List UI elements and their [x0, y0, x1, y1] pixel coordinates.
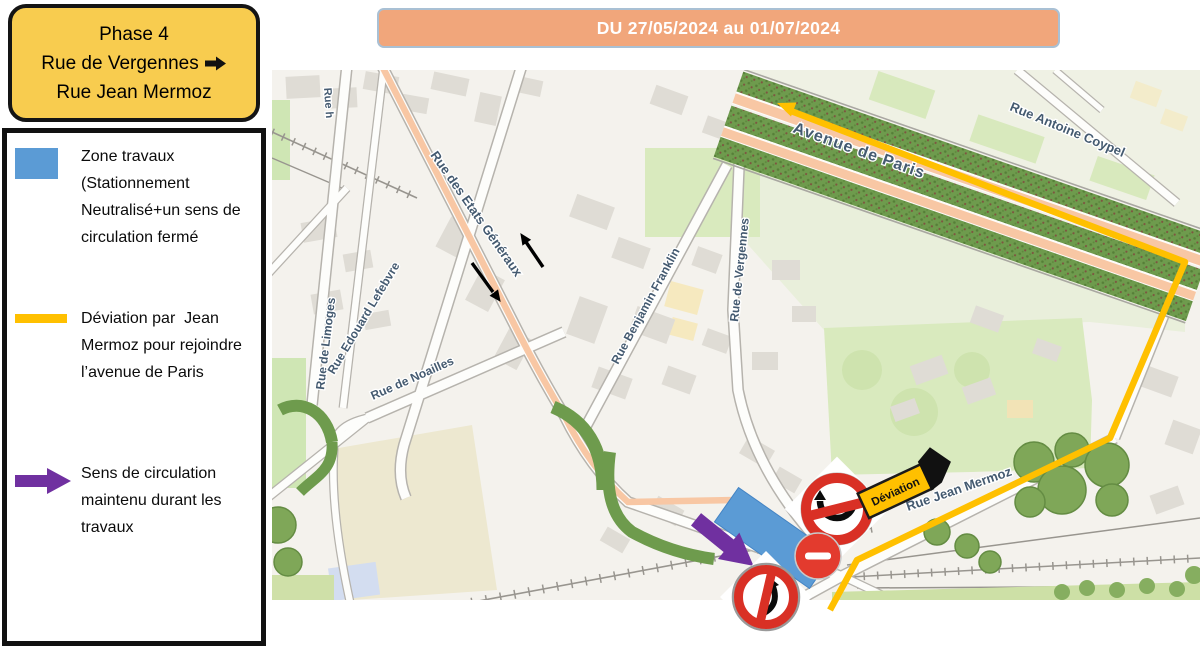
- legend-item-work-zone: Zone travaux (Stationnement Neutralisé+u…: [15, 143, 255, 251]
- date-banner-text: DU 27/05/2024 au 01/07/2024: [597, 18, 841, 39]
- phase-street-to: Rue Jean Mermoz: [56, 78, 211, 107]
- legend-item-kept-direction: Sens de circulation maintenu durant les …: [15, 460, 255, 541]
- legend-box: Zone travaux (Stationnement Neutralisé+u…: [2, 128, 266, 646]
- roadworks-infographic: Phase 4 Rue de Vergennes Rue Jean Mermoz…: [0, 0, 1200, 661]
- deviation-swatch: [15, 314, 67, 323]
- right-arrow-icon: [205, 56, 227, 71]
- no-entry-sign: [795, 533, 841, 579]
- phase-title-box: Phase 4 Rue de Vergennes Rue Jean Mermoz: [8, 4, 260, 122]
- kept-direction-label: Sens de circulation maintenu durant les …: [81, 460, 255, 541]
- street-label-partial: Rue h: [321, 87, 335, 119]
- deviation-map: Rue h Rue de Limoges Rue Edouard Lefebvr…: [272, 70, 1200, 661]
- work-zone-label: Zone travaux (Stationnement Neutralisé+u…: [81, 143, 255, 251]
- purple-arrow-icon: [15, 466, 81, 496]
- deviation-label: Déviation par Jean Mermoz pour rejoindre…: [81, 305, 255, 386]
- phase-number: Phase 4: [99, 20, 169, 49]
- legend-item-deviation: Déviation par Jean Mermoz pour rejoindre…: [15, 305, 255, 386]
- phase-street-from: Rue de Vergennes: [41, 49, 198, 78]
- work-zone-swatch: [15, 148, 58, 179]
- date-banner: DU 27/05/2024 au 01/07/2024: [377, 8, 1060, 48]
